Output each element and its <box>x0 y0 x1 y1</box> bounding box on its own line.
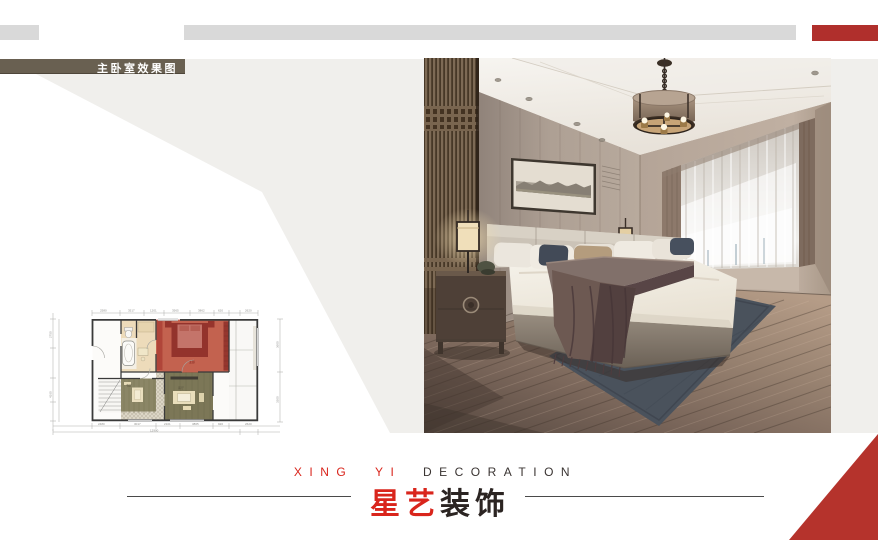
svg-text:920: 920 <box>218 422 223 426</box>
svg-text:3865: 3865 <box>192 422 199 426</box>
svg-text:书房: 书房 <box>126 384 132 388</box>
svg-text:主卧: 主卧 <box>189 359 195 364</box>
svg-text:3862: 3862 <box>198 309 205 313</box>
svg-text:3600: 3600 <box>276 341 280 348</box>
svg-text:12900: 12900 <box>150 428 159 432</box>
svg-text:3517: 3517 <box>128 309 135 313</box>
svg-text:620: 620 <box>218 309 223 313</box>
svg-text:2101: 2101 <box>164 422 171 426</box>
svg-text:4160: 4160 <box>49 391 53 398</box>
svg-text:3017: 3017 <box>134 422 141 426</box>
svg-text:2620: 2620 <box>245 422 252 426</box>
svg-text:2580: 2580 <box>100 309 107 313</box>
svg-text:2750: 2750 <box>49 331 53 338</box>
svg-text:3565: 3565 <box>172 309 179 313</box>
svg-text:2480: 2480 <box>98 422 105 426</box>
svg-text:3300: 3300 <box>276 396 280 403</box>
svg-text:1201: 1201 <box>150 309 157 313</box>
svg-text:客厅: 客厅 <box>178 385 184 390</box>
svg-text:2620: 2620 <box>245 309 252 313</box>
